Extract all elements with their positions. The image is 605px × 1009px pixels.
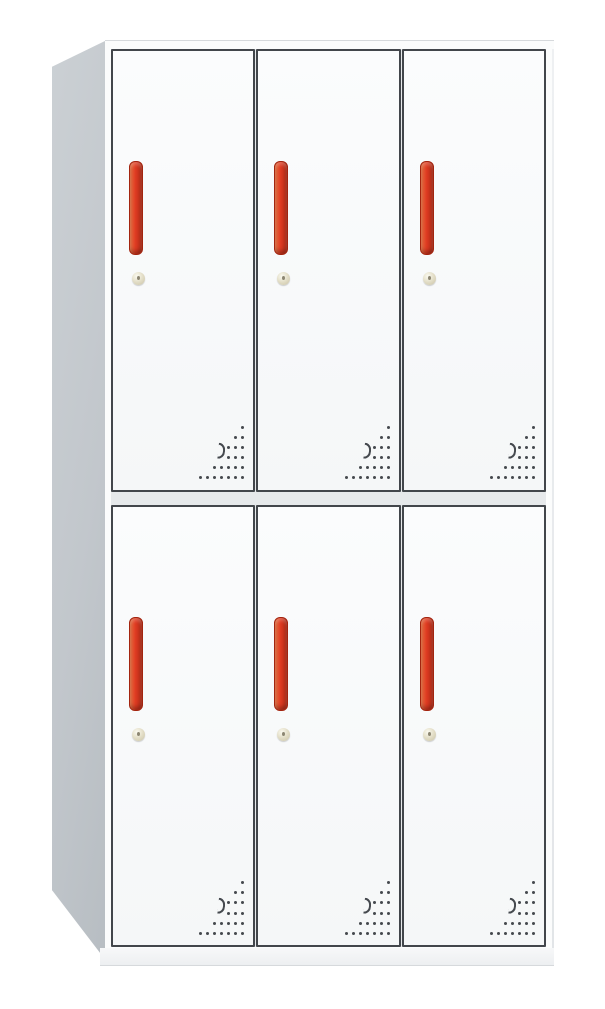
vent-dot [220,932,223,935]
vent-dot [227,456,230,459]
vent-dot [213,466,216,469]
vent-dot [518,466,521,469]
vent-dot [387,456,390,459]
vent-dot [241,922,244,925]
vent-dot [387,932,390,935]
vent-row [197,476,244,479]
locker-door-r1c3 [402,49,546,492]
vent-dot [525,456,528,459]
vent-dot [345,476,348,479]
vent-dot [387,891,390,894]
vent-row [488,426,535,429]
vent-dot [373,466,376,469]
vent-dot [380,932,383,935]
vent-row [197,922,244,925]
vent-dot [518,446,521,449]
vent-dot [373,922,376,925]
vent-dot [199,476,202,479]
vent-dot [518,456,521,459]
vent-dot [525,446,528,449]
locker-door-r2c3 [402,505,546,948]
vent-dot [359,932,362,935]
vent-dot [387,912,390,915]
vent-row [197,932,244,935]
door-handle [129,617,143,711]
vent-dot [518,922,521,925]
vent-dot [380,476,383,479]
vent-dot [241,901,244,904]
vent-dot [234,922,237,925]
vent-dot [525,891,528,894]
vent-dot [366,922,369,925]
vent-dot [241,912,244,915]
vent-dot [220,476,223,479]
vent-dot [241,466,244,469]
vent-dot [532,912,535,915]
vent-dot [227,466,230,469]
locker-product-photo [0,0,605,1009]
vent-dot [373,932,376,935]
vent-dot [380,446,383,449]
vent-row [197,436,244,439]
vent-dot [206,476,209,479]
vent-dot [213,922,216,925]
vent-dot [227,901,230,904]
vent-dot [532,881,535,884]
vent-dot [518,912,521,915]
vent-dot [213,932,216,935]
vent-dot [234,891,237,894]
vent-dot [234,476,237,479]
locker-door-r2c2 [256,505,400,948]
vent-dot [387,901,390,904]
vent-dot [532,891,535,894]
vent-dot [525,466,528,469]
vent-dot [532,476,535,479]
vent-dot [518,476,521,479]
vent-dot [532,466,535,469]
vent-dot [227,922,230,925]
vent-dot [511,476,514,479]
keyhole-lock [132,728,145,741]
vent-dot [241,476,244,479]
vent-row [343,891,390,894]
vent-holes [197,881,244,935]
vent-dot [387,881,390,884]
vent-dot [387,446,390,449]
vent-dot [525,932,528,935]
vent-dot [234,901,237,904]
vent-dot [345,932,348,935]
vent-row [343,436,390,439]
vent-dot [373,446,376,449]
vent-dot [532,901,535,904]
door-handle [420,161,434,255]
vent-row [488,476,535,479]
vent-dot [490,932,493,935]
vent-dot [359,476,362,479]
vent-dot [227,476,230,479]
vent-dot [234,912,237,915]
locker-door-r2c1 [111,505,255,948]
vent-dot [234,456,237,459]
vent-dot [213,476,216,479]
vent-dot [373,912,376,915]
vent-dot [497,476,500,479]
vent-dot [490,476,493,479]
vent-dot [532,922,535,925]
vent-dot [380,466,383,469]
vent-row [488,891,535,894]
vent-dot [241,891,244,894]
vent-dot [380,891,383,894]
vent-dot [511,922,514,925]
vent-dot [241,932,244,935]
vent-row [343,426,390,429]
door-handle [420,617,434,711]
locker-door-r1c2 [256,49,400,492]
vent-dot [525,901,528,904]
keyhole-lock [277,272,290,285]
vent-dot [373,476,376,479]
vent-dot [387,476,390,479]
vent-dot [380,901,383,904]
cabinet-base-plinth [100,948,554,966]
vent-dot [504,932,507,935]
vent-dot [380,922,383,925]
vent-row [197,466,244,469]
vent-dot [220,922,223,925]
vent-dot [504,476,507,479]
vent-row [488,932,535,935]
vent-dot [532,436,535,439]
door-handle [129,161,143,255]
vent-dot [373,901,376,904]
vent-holes [488,426,535,480]
vent-row [197,881,244,884]
vent-dot [206,932,209,935]
vent-dot [387,436,390,439]
vent-row [488,466,535,469]
vent-dot [532,426,535,429]
vent-dot [504,922,507,925]
vent-row [488,881,535,884]
vent-dot [352,476,355,479]
cabinet-side-panel [52,40,107,962]
vent-dot [532,456,535,459]
vent-dot [241,426,244,429]
vent-dot [241,436,244,439]
door-grid [111,49,546,947]
cabinet-front-face [105,40,554,949]
vent-dot [241,881,244,884]
vent-dot [525,922,528,925]
vent-dot [366,932,369,935]
vent-dot [525,436,528,439]
vent-dot [227,446,230,449]
vent-holes [488,881,535,935]
vent-dot [241,446,244,449]
vent-dot [380,456,383,459]
vent-holes [197,426,244,480]
vent-dot [220,466,223,469]
vent-row [343,922,390,925]
vent-holes [343,881,390,935]
vent-dot [532,446,535,449]
vent-dot [380,436,383,439]
keyhole-lock [423,728,436,741]
vent-dot [518,932,521,935]
vent-dot [234,446,237,449]
vent-row [197,891,244,894]
vent-row [488,922,535,925]
vent-dot [234,466,237,469]
vent-row [488,436,535,439]
vent-dot [497,932,500,935]
vent-dot [234,932,237,935]
vent-dot [511,466,514,469]
vent-dot [518,901,521,904]
vent-dot [241,456,244,459]
keyhole-lock [423,272,436,285]
vent-row [343,881,390,884]
vent-dot [227,912,230,915]
vent-dot [525,476,528,479]
vent-dot [387,426,390,429]
vent-row [197,426,244,429]
vent-holes [343,426,390,480]
keyhole-lock [277,728,290,741]
vent-row [343,466,390,469]
vent-dot [532,932,535,935]
vent-dot [234,436,237,439]
vent-dot [366,476,369,479]
vent-dot [525,912,528,915]
vent-dot [387,922,390,925]
vent-dot [352,932,355,935]
vent-dot [199,932,202,935]
vent-dot [359,466,362,469]
door-handle [274,161,288,255]
vent-dot [227,932,230,935]
door-handle [274,617,288,711]
vent-dot [504,466,507,469]
vent-dot [373,456,376,459]
vent-row [343,476,390,479]
locker-door-r1c1 [111,49,255,492]
vent-dot [511,932,514,935]
vent-row [343,932,390,935]
vent-dot [366,466,369,469]
vent-dot [359,922,362,925]
vent-dot [387,466,390,469]
keyhole-lock [132,272,145,285]
vent-dot [380,912,383,915]
